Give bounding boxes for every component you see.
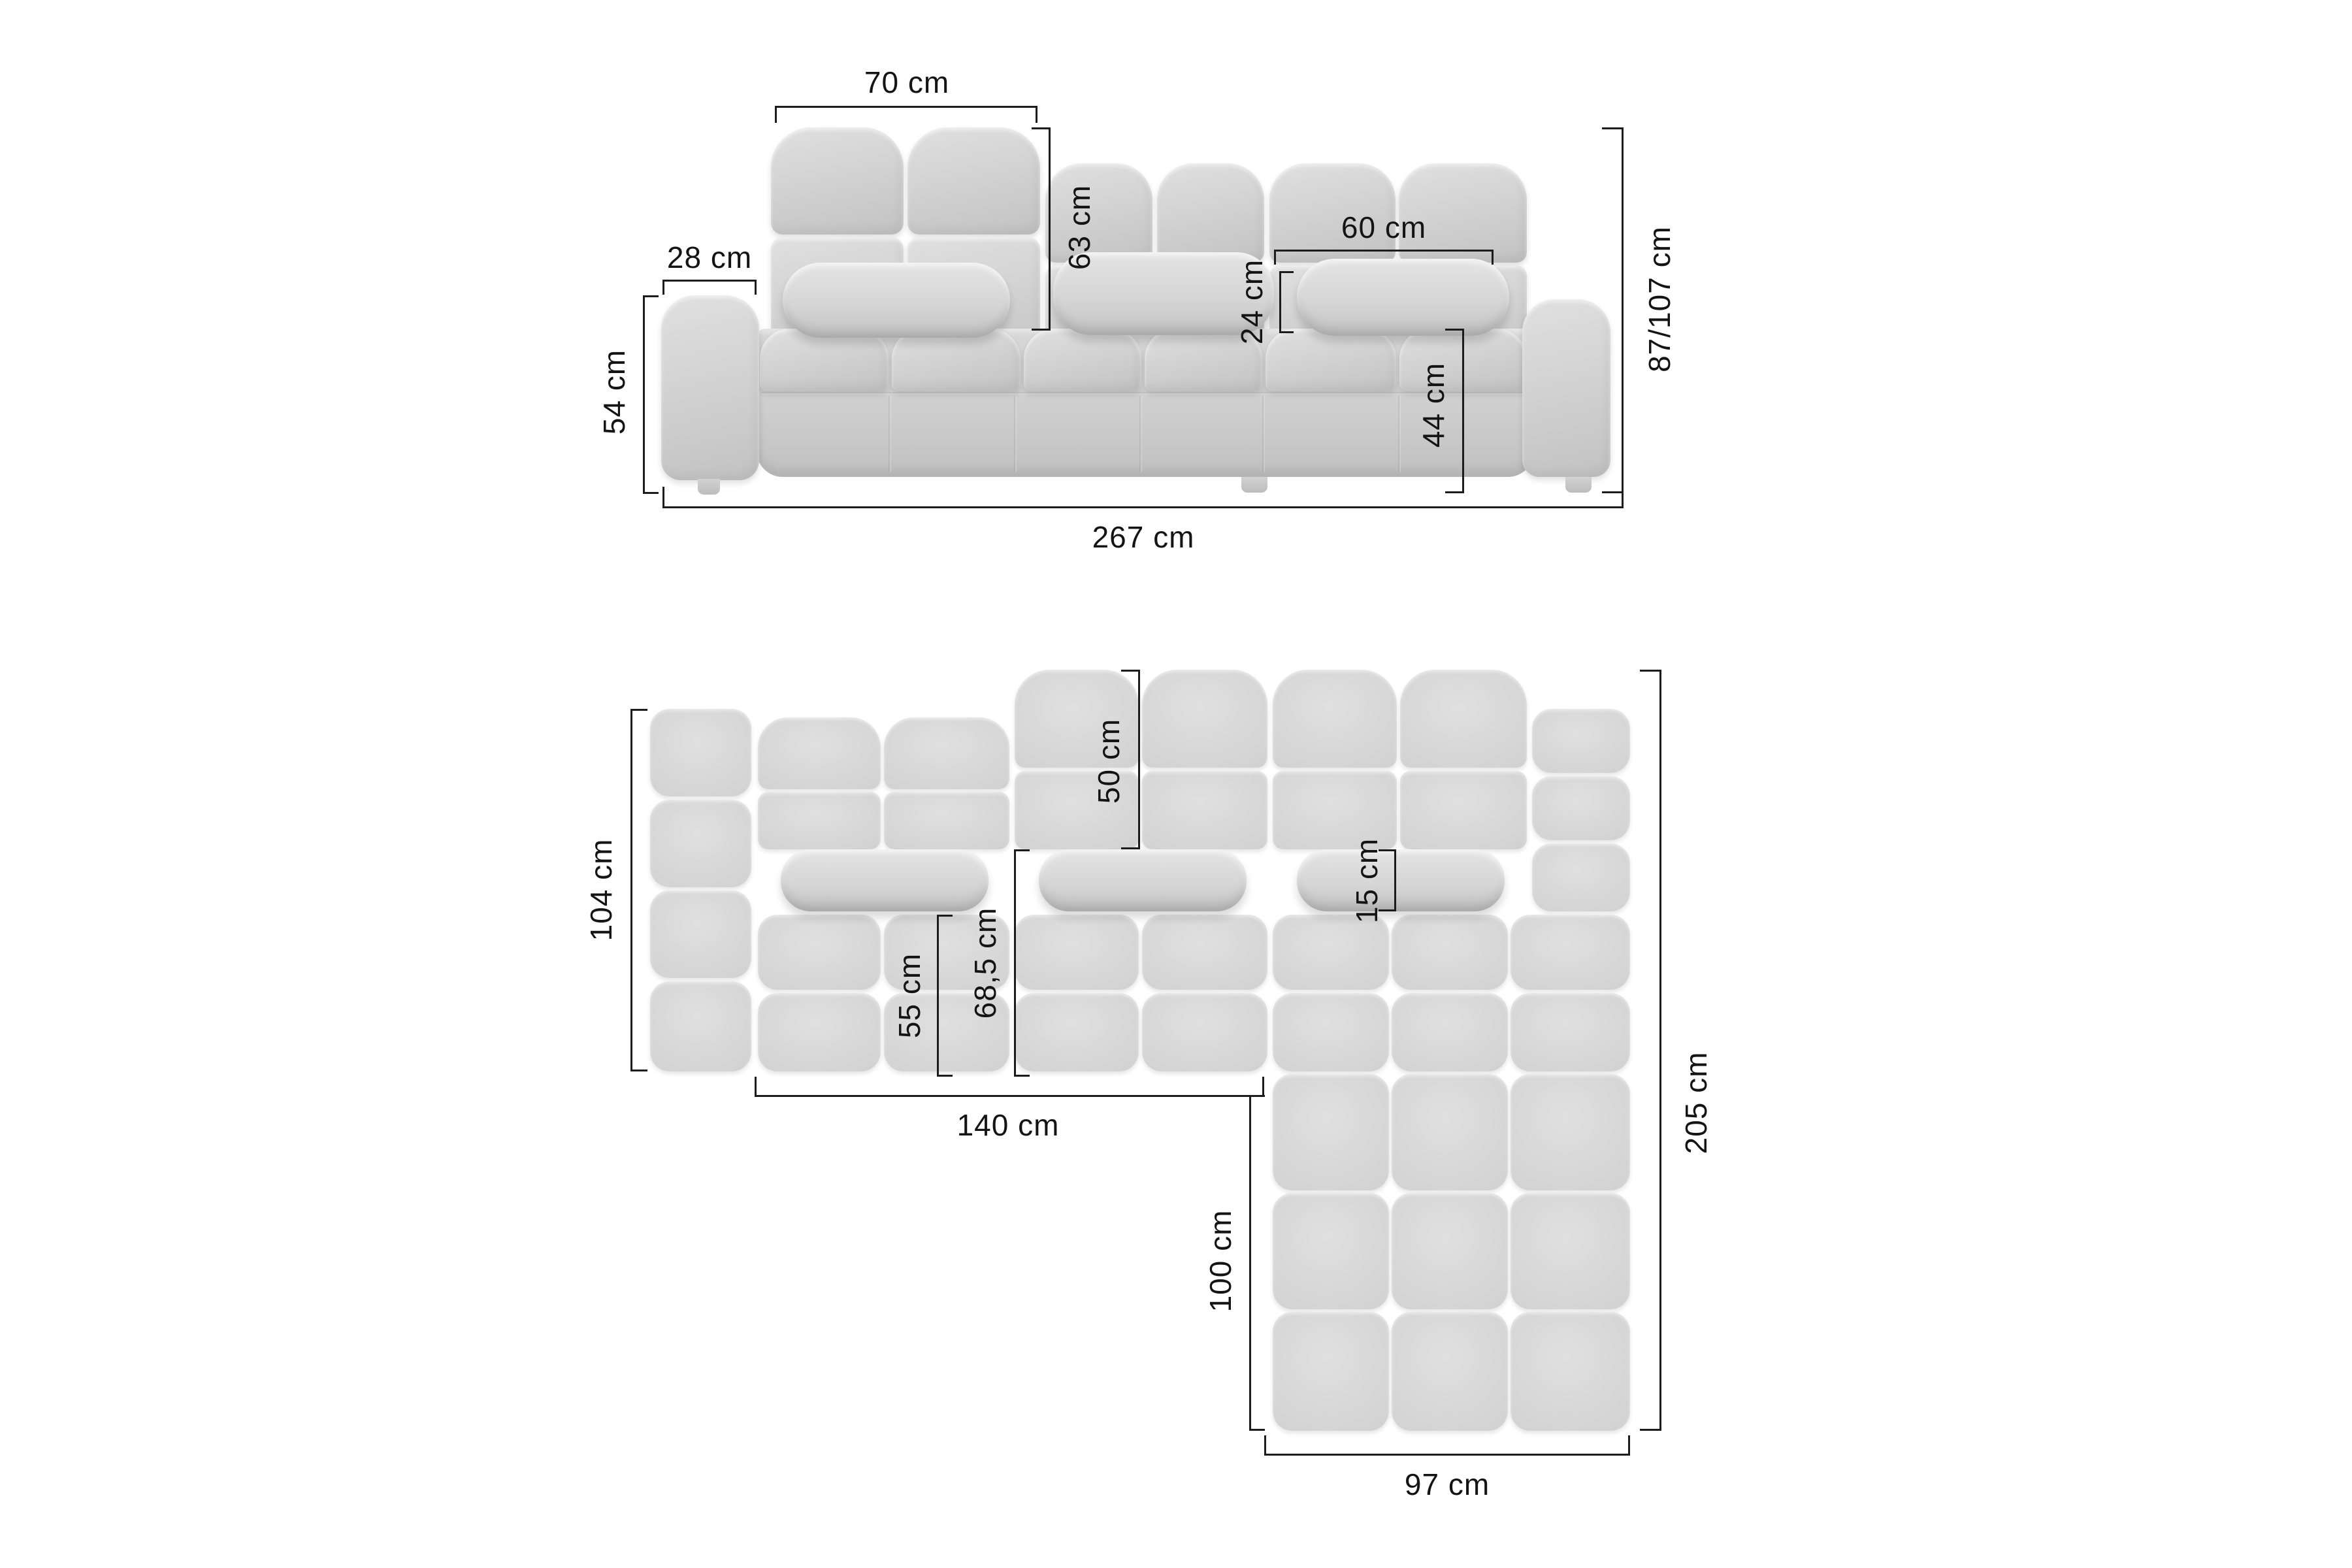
dim-label-chaise-extension-length: 100 cm bbox=[1203, 1210, 1238, 1313]
dim-label-backrest-width: 70 cm bbox=[864, 65, 949, 100]
front-seat-seam bbox=[889, 396, 891, 472]
dim-label-main-depth: 104 cm bbox=[583, 839, 619, 941]
top-chaise-cushion bbox=[1392, 993, 1508, 1071]
top-chaise-cushion bbox=[1511, 1312, 1630, 1431]
top-left-armrest-cushion bbox=[650, 800, 751, 887]
top-backrest-left-cushion bbox=[758, 717, 881, 789]
front-backrest-tall-cushion bbox=[771, 127, 904, 235]
top-backrest-left-cushion bbox=[758, 792, 881, 849]
front-seat-seam bbox=[1398, 396, 1401, 472]
dimension-diagram: 70 cm 63 cm 28 cm 54 cm 60 cm bbox=[0, 0, 2352, 1568]
front-seat-seam bbox=[762, 392, 1529, 395]
top-chaise-cushion bbox=[1273, 1074, 1389, 1190]
top-right-armrest-cushion bbox=[1532, 843, 1630, 911]
top-chaise-cushion bbox=[1392, 915, 1508, 990]
front-pillow bbox=[1297, 259, 1509, 336]
top-chaise-cushion bbox=[1273, 915, 1389, 990]
front-pillow bbox=[783, 263, 1010, 338]
dim-label-armrest-width: 28 cm bbox=[667, 240, 752, 275]
top-pillow bbox=[1039, 849, 1247, 911]
top-pillow bbox=[1297, 849, 1505, 911]
top-chaise-cushion bbox=[1392, 1312, 1508, 1431]
top-chaise-cushion bbox=[1273, 1193, 1389, 1309]
top-backrest-mid-cushion bbox=[1142, 670, 1267, 768]
dim-label-backrest-depth: 50 cm bbox=[1091, 719, 1126, 804]
front-seat-hump bbox=[1266, 329, 1396, 391]
top-backrest-right-cushion bbox=[1400, 670, 1527, 768]
dim-label-seat-height: 44 cm bbox=[1416, 363, 1451, 448]
top-left-armrest-cushion bbox=[650, 709, 751, 796]
front-seat-hump bbox=[892, 329, 1021, 391]
dim-label-total-height: 87/107 cm bbox=[1642, 226, 1677, 372]
top-seat-cushion bbox=[758, 915, 881, 990]
top-seat-cushion bbox=[1015, 915, 1139, 990]
top-right-armrest-cushion bbox=[1532, 709, 1630, 773]
front-left-armrest-leg bbox=[698, 479, 720, 495]
top-backrest-right-cushion bbox=[1273, 670, 1397, 768]
top-chaise-cushion bbox=[1511, 1193, 1630, 1309]
top-chaise-cushion bbox=[1392, 1074, 1508, 1190]
top-chaise-cushion bbox=[1511, 915, 1630, 990]
top-chaise-cushion bbox=[1511, 1074, 1630, 1190]
top-chaise-cushion bbox=[1273, 1312, 1389, 1431]
dim-label-total-depth: 205 cm bbox=[1678, 1052, 1714, 1154]
top-backrest-left-cushion bbox=[884, 717, 1009, 789]
dim-label-pillow-depth: 15 cm bbox=[1349, 838, 1384, 923]
top-chaise-cushion bbox=[1511, 993, 1630, 1071]
top-pillow bbox=[781, 849, 988, 911]
dim-label-backrest-height: 63 cm bbox=[1062, 185, 1097, 270]
top-seat-cushion bbox=[1142, 915, 1267, 990]
front-sofa-leg bbox=[1565, 477, 1592, 493]
dim-label-armrest-height: 54 cm bbox=[596, 350, 632, 434]
top-chaise-cushion bbox=[1273, 993, 1389, 1071]
front-sofa-leg bbox=[1241, 477, 1267, 493]
top-chaise-cushion bbox=[1392, 1193, 1508, 1309]
front-right-armrest bbox=[1522, 299, 1610, 477]
front-seat-hump bbox=[760, 329, 889, 391]
dim-label-chaise-width: 97 cm bbox=[1405, 1467, 1490, 1502]
top-seat-cushion bbox=[1015, 993, 1139, 1071]
front-backrest-mid-cushion bbox=[1157, 163, 1264, 263]
top-left-armrest-cushion bbox=[650, 981, 751, 1071]
dim-label-pillow-width: 60 cm bbox=[1341, 210, 1426, 245]
dim-label-main-section-width: 140 cm bbox=[957, 1107, 1060, 1143]
dim-label-seat-depth: 55 cm bbox=[892, 953, 927, 1038]
front-left-armrest bbox=[661, 295, 759, 480]
top-seat-cushion bbox=[758, 993, 881, 1071]
top-backrest-mid-cushion bbox=[1142, 771, 1267, 849]
front-seat-hump bbox=[1024, 329, 1141, 391]
top-left-armrest-cushion bbox=[650, 890, 751, 978]
top-backrest-left-cushion bbox=[884, 792, 1009, 849]
top-right-armrest-cushion bbox=[1532, 776, 1630, 840]
top-seat-cushion bbox=[1142, 993, 1267, 1071]
front-seat-seam bbox=[1262, 396, 1265, 472]
dim-label-pillow-height: 24 cm bbox=[1234, 259, 1269, 344]
front-seat-seam bbox=[1014, 396, 1017, 472]
dim-label-seat-with-pillow-depth: 68,5 cm bbox=[968, 907, 1003, 1019]
front-backrest-tall-cushion bbox=[907, 127, 1040, 235]
dim-label-total-width: 267 cm bbox=[1092, 519, 1195, 555]
front-seat-seam bbox=[1139, 396, 1142, 472]
top-backrest-right-cushion bbox=[1400, 771, 1527, 849]
